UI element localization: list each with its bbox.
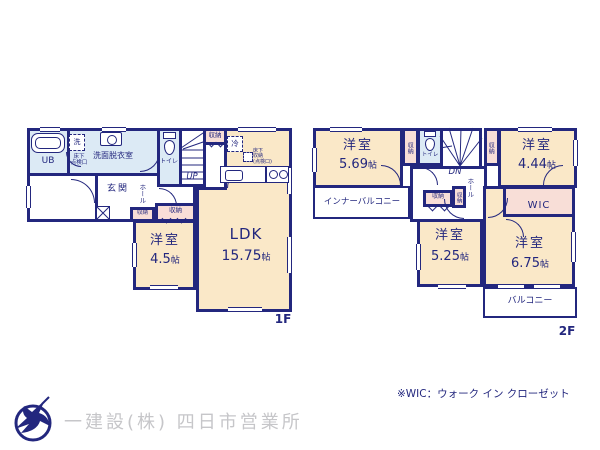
label-room-se-size: 6.75帖 [497, 257, 563, 271]
label-closet-small: 収納 [131, 211, 154, 217]
shoe-box [96, 206, 110, 220]
label-underfloor: 床下収納(点検口) [253, 149, 275, 165]
label-room-s-name: 洋室 [424, 229, 476, 243]
label-room-ne-name: 洋室 [500, 139, 574, 153]
label-hall-1f: ホール [138, 180, 145, 208]
label-closet-hall-v-2f: 収納 [455, 189, 461, 206]
window [571, 232, 576, 262]
bathtub-icon [31, 133, 65, 153]
label-room-ne-size: 4.44帖 [500, 158, 574, 172]
label-closet-hall: 収納 [160, 207, 191, 214]
window [498, 284, 524, 289]
label-ldk-name: LDK [210, 227, 282, 243]
floor2-label: 2F [554, 325, 580, 338]
label-closet-nw: 収納 [406, 134, 412, 162]
window [238, 127, 276, 132]
underfloor-storage-box [243, 152, 253, 162]
window [132, 243, 137, 267]
kitchen-sink-icon [225, 170, 243, 181]
label-inner-balcony: インナーバルコニー [320, 198, 404, 207]
window [150, 285, 178, 290]
label-ldk-size: 15.75帖 [202, 249, 290, 264]
floorplan-canvas: UB 洗 床下点検口 洗面脱衣室 トイレ UP 収納 冷 床下収納(点検口) 玄… [0, 0, 600, 450]
label-closet-ne: 収納 [487, 134, 493, 162]
label-room-se-name: 洋室 [500, 237, 560, 251]
label-laundry: 洗 [71, 139, 83, 146]
window [518, 127, 552, 132]
sink-icon [100, 132, 122, 146]
company-name: 一建設(株) 四日市営業所 [64, 408, 303, 434]
label-wic: WIC [519, 201, 559, 212]
window [26, 186, 31, 208]
toilet-icon-2f [424, 131, 436, 137]
label-balcony: バルコニー [501, 297, 559, 306]
label-closet-kitchen: 収納 [204, 132, 226, 139]
stairs-treads-2f [440, 128, 482, 169]
label-closet-hall-2f: 収納 [426, 194, 450, 200]
label-fridge: 冷 [228, 140, 242, 148]
window [534, 284, 560, 289]
toilet-icon-1f [163, 132, 176, 139]
window [330, 127, 362, 132]
window [228, 307, 262, 312]
label-washroom: 洗面脱衣室 [88, 152, 138, 160]
label-up: UP [181, 173, 203, 182]
label-toilet-2f: トイレ [419, 153, 441, 159]
label-room-west-name: 洋室 [141, 234, 189, 248]
label-room-west-size: 4.5帖 [141, 253, 189, 267]
label-ub: UB [36, 157, 60, 166]
company-logo-icon [12, 396, 54, 444]
window [438, 284, 466, 289]
label-room-nw-size: 5.69帖 [322, 158, 394, 172]
label-room-nw-name: 洋室 [322, 139, 394, 153]
kitchen-counter [220, 166, 266, 183]
window [312, 148, 317, 172]
label-hall-2f: ホール [466, 173, 473, 203]
stove-icon [266, 166, 289, 183]
floor1-label: 1F [270, 313, 296, 326]
label-room-s-size: 5.25帖 [420, 250, 480, 264]
window [40, 127, 60, 132]
label-dn: DN [444, 168, 466, 177]
label-entrance: 玄関 [101, 185, 135, 194]
wic-note: ※WIC：ウォーク イン クローゼット [397, 386, 570, 401]
label-toilet-1f: トイレ [158, 159, 180, 165]
